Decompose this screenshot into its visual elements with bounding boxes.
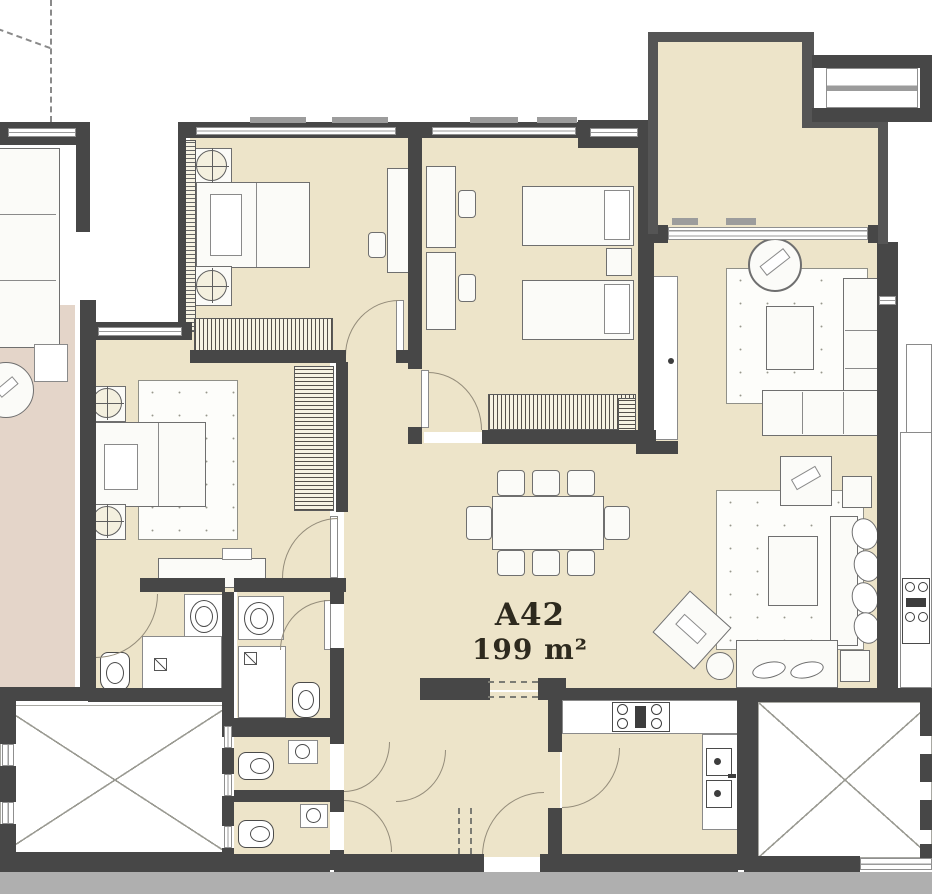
desk [387, 168, 410, 273]
window [590, 128, 638, 137]
wall [178, 138, 186, 335]
faucet-icon [714, 790, 721, 797]
stove-center [635, 706, 646, 728]
burner-icon [617, 718, 628, 729]
window [432, 127, 576, 135]
window-handle [250, 117, 306, 123]
pillar [222, 848, 234, 872]
dining-chair [567, 470, 595, 496]
wall [636, 441, 678, 454]
desk [426, 166, 456, 248]
wall [0, 852, 222, 872]
wall [140, 578, 225, 592]
toilet-bowl [106, 662, 124, 684]
dining-chair [497, 550, 525, 576]
wall [234, 578, 346, 592]
window-handle [672, 218, 698, 225]
bed-pillow [210, 194, 242, 256]
wardrobe [194, 318, 333, 352]
window [196, 127, 396, 135]
terrace-void-right [758, 702, 932, 858]
wall [420, 678, 490, 700]
terrace-wall [648, 32, 658, 234]
wall [812, 108, 932, 122]
window [2, 744, 14, 766]
burner-icon [905, 582, 915, 592]
round-side-table [706, 652, 734, 680]
cabinet-handle [668, 358, 674, 364]
nightstand [606, 248, 632, 276]
faucet-icon [728, 774, 736, 778]
dining-chair [604, 506, 630, 540]
sofa-seat-line [0, 214, 56, 215]
basin-bowl [295, 744, 310, 759]
wall [548, 808, 562, 858]
wall [80, 300, 96, 692]
boundary-dashed-line [0, 28, 51, 49]
dining-chair [466, 506, 492, 540]
neighbor-sofa [0, 148, 60, 348]
burner-icon [905, 612, 915, 622]
window [8, 128, 76, 137]
ground-strip [0, 872, 932, 894]
terrace-floor [655, 40, 807, 130]
burner-icon [651, 704, 662, 715]
opening-dashed-line [488, 681, 538, 683]
shower-drain-icon [244, 652, 257, 665]
neighbor-side-table [34, 344, 68, 382]
pillar [222, 692, 234, 726]
bed-pillow [604, 284, 630, 334]
burner-icon [918, 582, 928, 592]
sofa [762, 390, 887, 436]
bed-line [158, 423, 159, 506]
coffee-table [766, 306, 814, 370]
wall [234, 854, 330, 872]
wall [564, 688, 738, 700]
shower-drain-icon [154, 658, 167, 671]
wall [744, 856, 860, 872]
desk-chair [368, 232, 386, 258]
neighbor-counter [900, 432, 932, 688]
sink-icon [195, 606, 213, 627]
lamp-icon [196, 270, 227, 301]
burner-icon [918, 612, 928, 622]
burner-icon [651, 718, 662, 729]
sink-icon [250, 608, 268, 629]
sofa-seat-line [843, 392, 844, 434]
window [826, 68, 918, 108]
dining-chair [532, 550, 560, 576]
window [860, 858, 932, 870]
wall [76, 122, 90, 232]
pillar [920, 700, 932, 736]
floor-plan: A42 199 m² [0, 0, 932, 894]
unit-label: A42 199 m² [430, 598, 630, 666]
wall [408, 427, 422, 444]
dining-chair [567, 550, 595, 576]
wall [538, 678, 566, 700]
side-table [840, 650, 870, 682]
desk [426, 252, 456, 330]
wall [408, 137, 422, 369]
stove-center [906, 598, 926, 607]
bed-line [256, 183, 257, 267]
entrance-dashed-line [470, 808, 472, 854]
basin-bowl [306, 808, 321, 823]
wall [330, 592, 344, 604]
wardrobe [294, 366, 334, 511]
window [224, 774, 232, 796]
pillar [222, 796, 234, 826]
window [98, 327, 182, 336]
wall [334, 854, 484, 872]
pillar [222, 748, 234, 774]
toilet-bowl [298, 690, 314, 710]
dining-table [492, 496, 604, 550]
bed-pillow [104, 444, 138, 490]
window [2, 802, 14, 824]
pillar [920, 754, 932, 782]
terrace-floor [655, 125, 883, 233]
wall [482, 430, 656, 444]
wall [222, 718, 344, 737]
opening-dashed-line [488, 696, 538, 698]
window-handle [470, 117, 518, 123]
side-table [842, 476, 872, 508]
toilet-bowl [250, 826, 270, 842]
wall [234, 790, 344, 802]
wall [877, 242, 898, 690]
terrace-void-left [0, 705, 230, 855]
sofa-seat-line [0, 280, 56, 281]
unit-area: 199 m² [430, 634, 630, 666]
wall [920, 55, 932, 122]
sofa-seat-line [802, 392, 803, 434]
wall [222, 592, 234, 692]
wardrobe [488, 394, 636, 430]
wall [540, 854, 738, 872]
boundary-dashed-line [50, 0, 52, 122]
terrace-wall [878, 118, 888, 244]
bed-pillow [604, 190, 630, 240]
entrance-dashed-line [458, 808, 460, 854]
wall [88, 688, 234, 702]
burner-icon [617, 704, 628, 715]
wall [190, 350, 346, 363]
light-well [88, 138, 178, 332]
ac-vent [618, 398, 636, 434]
wall [336, 362, 348, 512]
toilet-bowl [250, 758, 270, 774]
wall [548, 700, 562, 752]
pillar [0, 824, 16, 868]
lamp-icon [92, 388, 122, 418]
window-handle [726, 218, 756, 225]
neighbor-cabinet [906, 344, 932, 434]
pillar [920, 844, 932, 858]
wall [812, 55, 932, 68]
wall [396, 350, 422, 363]
dining-chair [532, 470, 560, 496]
pillar [0, 700, 16, 744]
window-handle [537, 117, 577, 123]
desk-chair [458, 274, 476, 302]
window [224, 726, 232, 748]
lamp-icon [92, 506, 122, 536]
wall [0, 687, 88, 701]
unit-number: A42 [430, 598, 630, 634]
window [879, 296, 896, 305]
desk-chair [458, 190, 476, 218]
window-handle [332, 117, 388, 123]
wall [737, 688, 932, 702]
wall [737, 688, 758, 870]
lamp-icon [196, 150, 227, 181]
dining-chair [497, 470, 525, 496]
sliding-door-window [668, 227, 868, 240]
tall-cabinet [652, 276, 678, 440]
window [224, 826, 232, 848]
pillar [0, 766, 16, 802]
pillar [920, 800, 932, 830]
coffee-table [768, 536, 818, 606]
terrace-wall [648, 32, 812, 42]
faucet-icon [714, 758, 721, 765]
dresser-knob [222, 548, 252, 560]
